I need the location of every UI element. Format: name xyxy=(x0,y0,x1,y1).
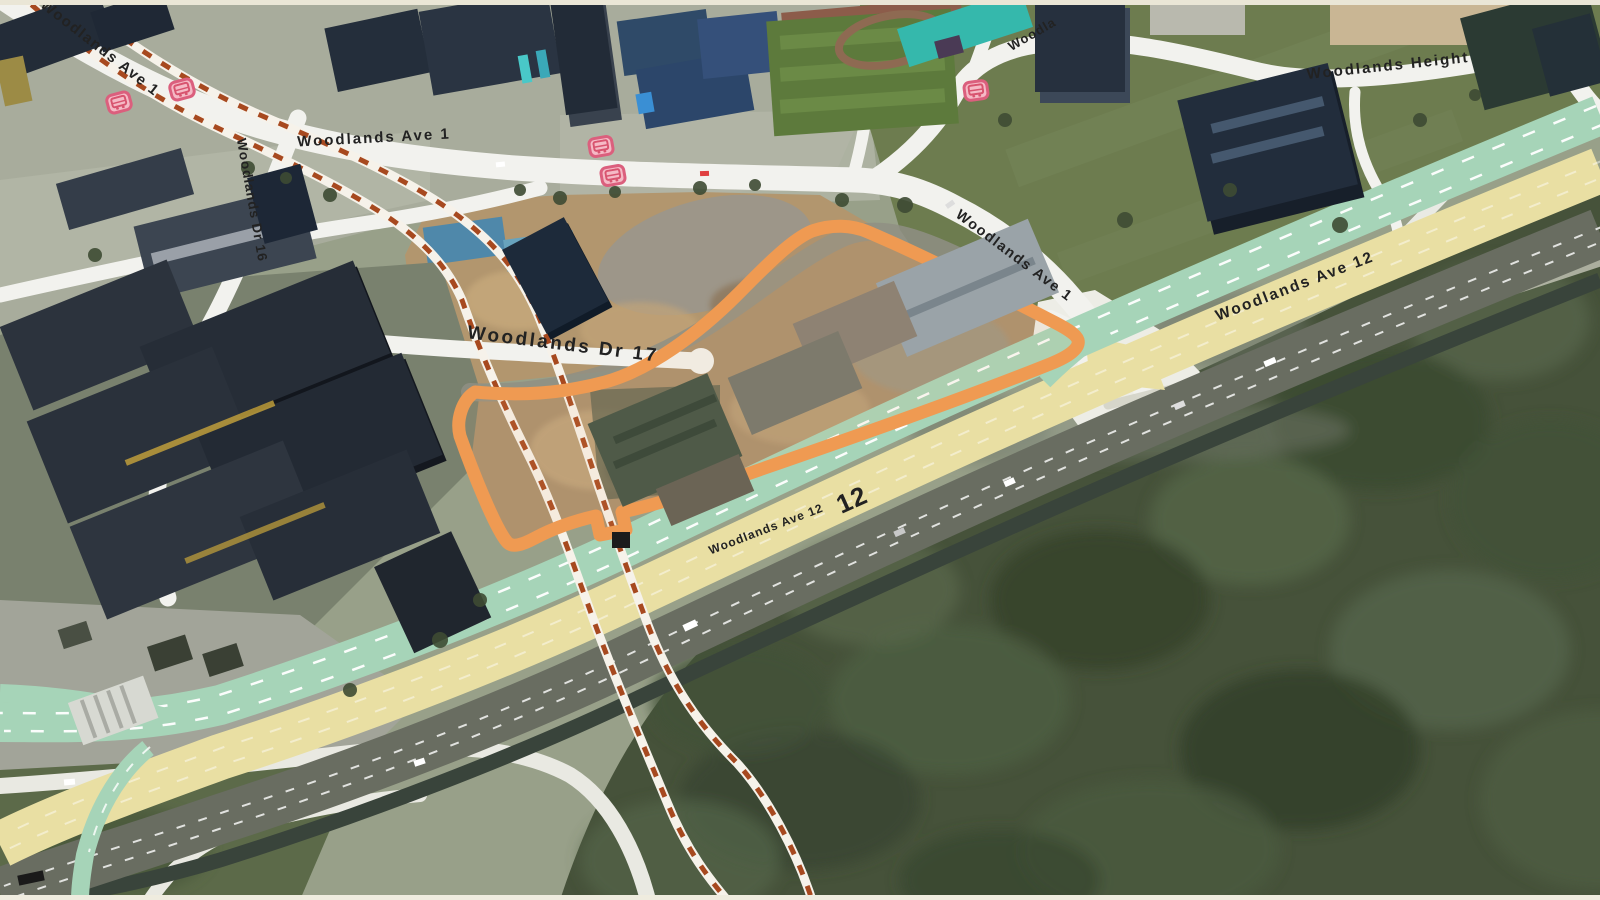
bus-stop-icon[interactable] xyxy=(962,78,991,102)
map-canvas[interactable] xyxy=(0,0,1600,900)
top-border-strip xyxy=(0,0,1600,5)
bottom-border-strip xyxy=(0,895,1600,900)
map-viewport[interactable]: Woodlands Ave 1 Woodlands Ave 1 Woodland… xyxy=(0,0,1600,900)
site-gate xyxy=(612,532,630,548)
